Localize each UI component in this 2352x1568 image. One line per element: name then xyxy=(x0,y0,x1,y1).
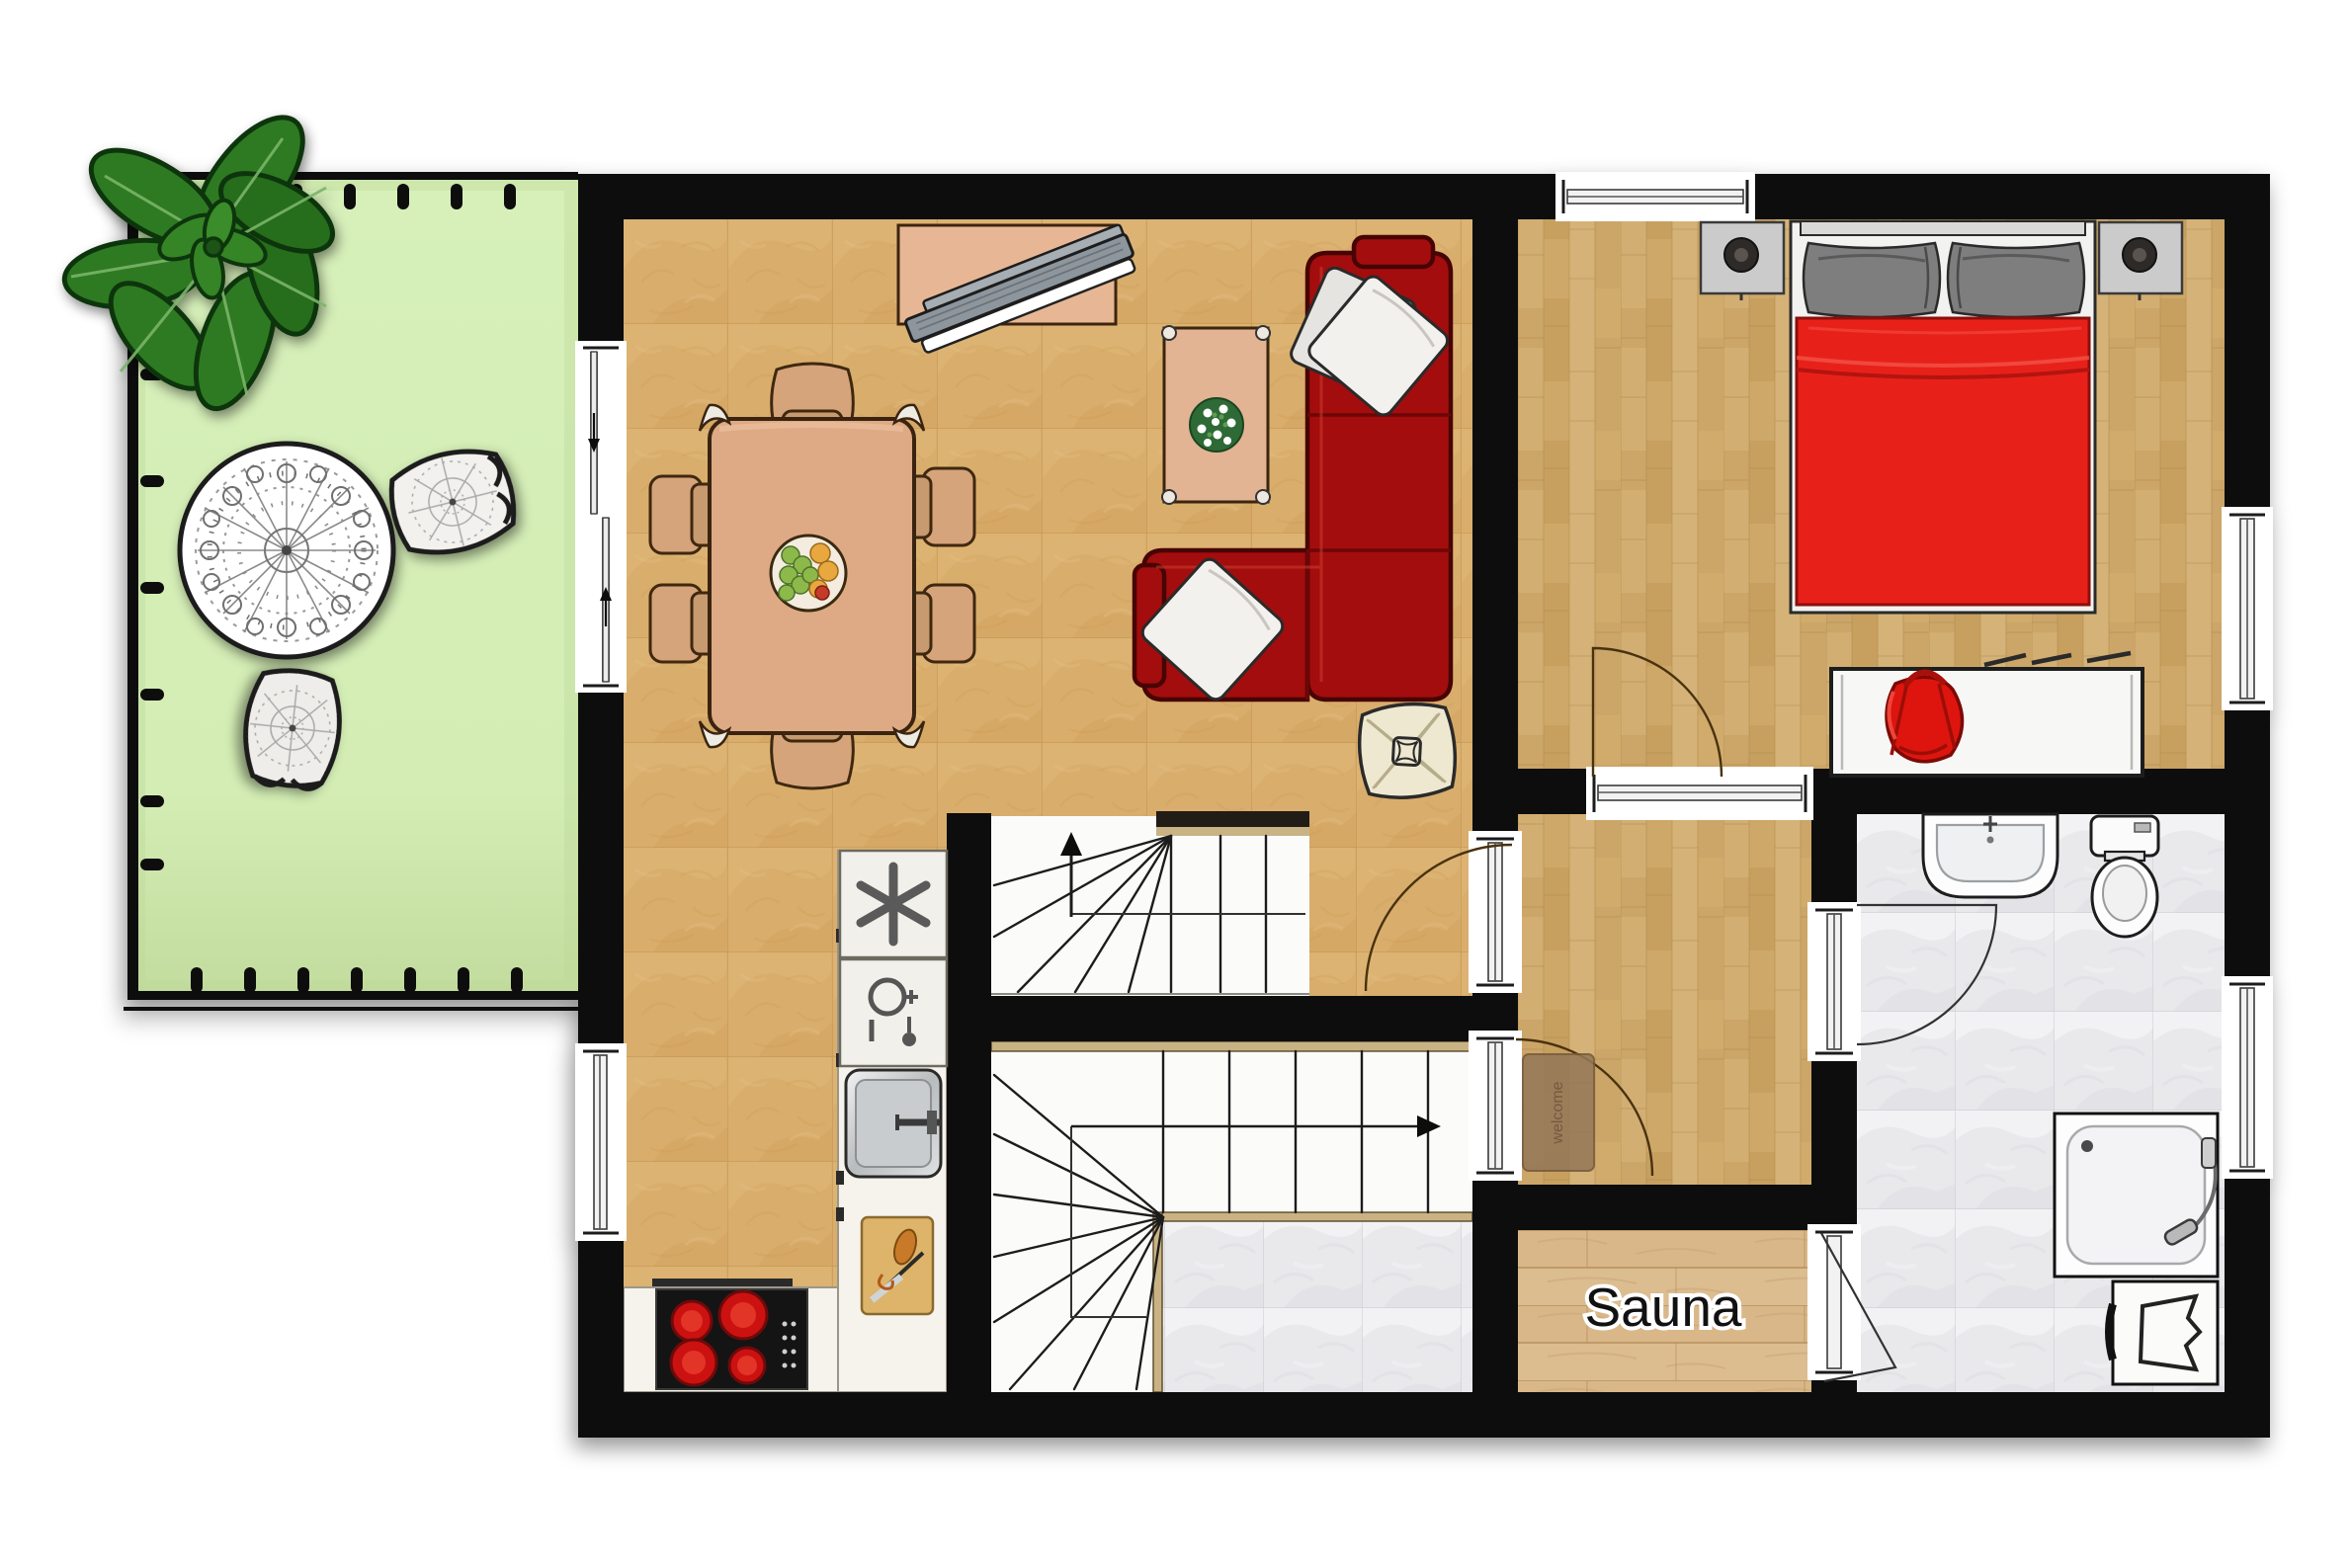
svg-text:Sauna: Sauna xyxy=(1584,1277,1741,1338)
svg-text:welcome: welcome xyxy=(1550,1081,1566,1144)
